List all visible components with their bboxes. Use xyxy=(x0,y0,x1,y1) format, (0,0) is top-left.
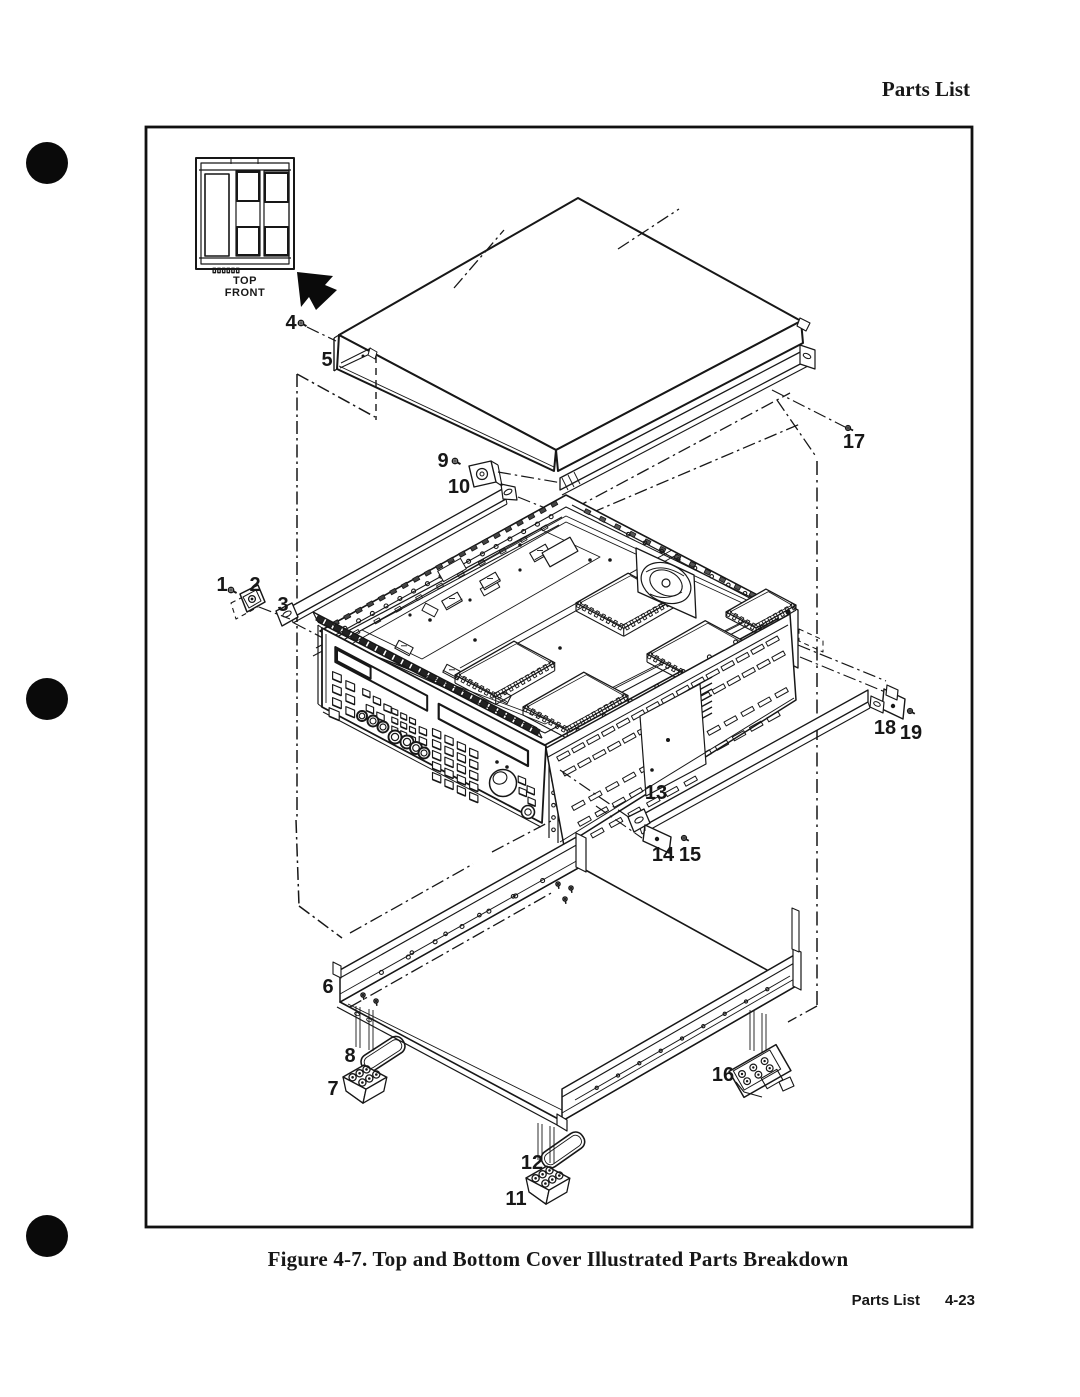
svg-text:FRONT: FRONT xyxy=(225,287,265,299)
svg-text:13: 13 xyxy=(645,782,667,804)
svg-text:5: 5 xyxy=(321,349,332,371)
svg-text:16: 16 xyxy=(712,1064,734,1086)
svg-text:14: 14 xyxy=(652,844,675,866)
svg-text:Parts List: Parts List xyxy=(852,1292,920,1309)
svg-text:4-23: 4-23 xyxy=(945,1292,975,1309)
svg-text:Figure 4-7. Top and Bottom Cov: Figure 4-7. Top and Bottom Cover Illustr… xyxy=(268,1247,849,1271)
svg-text:8: 8 xyxy=(344,1045,355,1067)
svg-text:10: 10 xyxy=(448,476,470,498)
svg-text:6: 6 xyxy=(322,976,333,998)
svg-text:19: 19 xyxy=(900,722,922,744)
svg-text:15: 15 xyxy=(679,844,701,866)
svg-text:17: 17 xyxy=(843,431,865,453)
svg-text:3: 3 xyxy=(277,594,288,616)
svg-text:11: 11 xyxy=(505,1188,526,1210)
svg-text:12: 12 xyxy=(521,1152,543,1174)
svg-text:7: 7 xyxy=(327,1078,338,1100)
svg-text:TOP: TOP xyxy=(233,275,257,287)
svg-text:9: 9 xyxy=(437,450,448,472)
svg-text:4: 4 xyxy=(285,312,297,334)
svg-text:1: 1 xyxy=(216,574,227,596)
svg-text:18: 18 xyxy=(874,717,896,739)
svg-text:Parts List: Parts List xyxy=(882,77,970,101)
svg-text:2: 2 xyxy=(249,574,260,596)
